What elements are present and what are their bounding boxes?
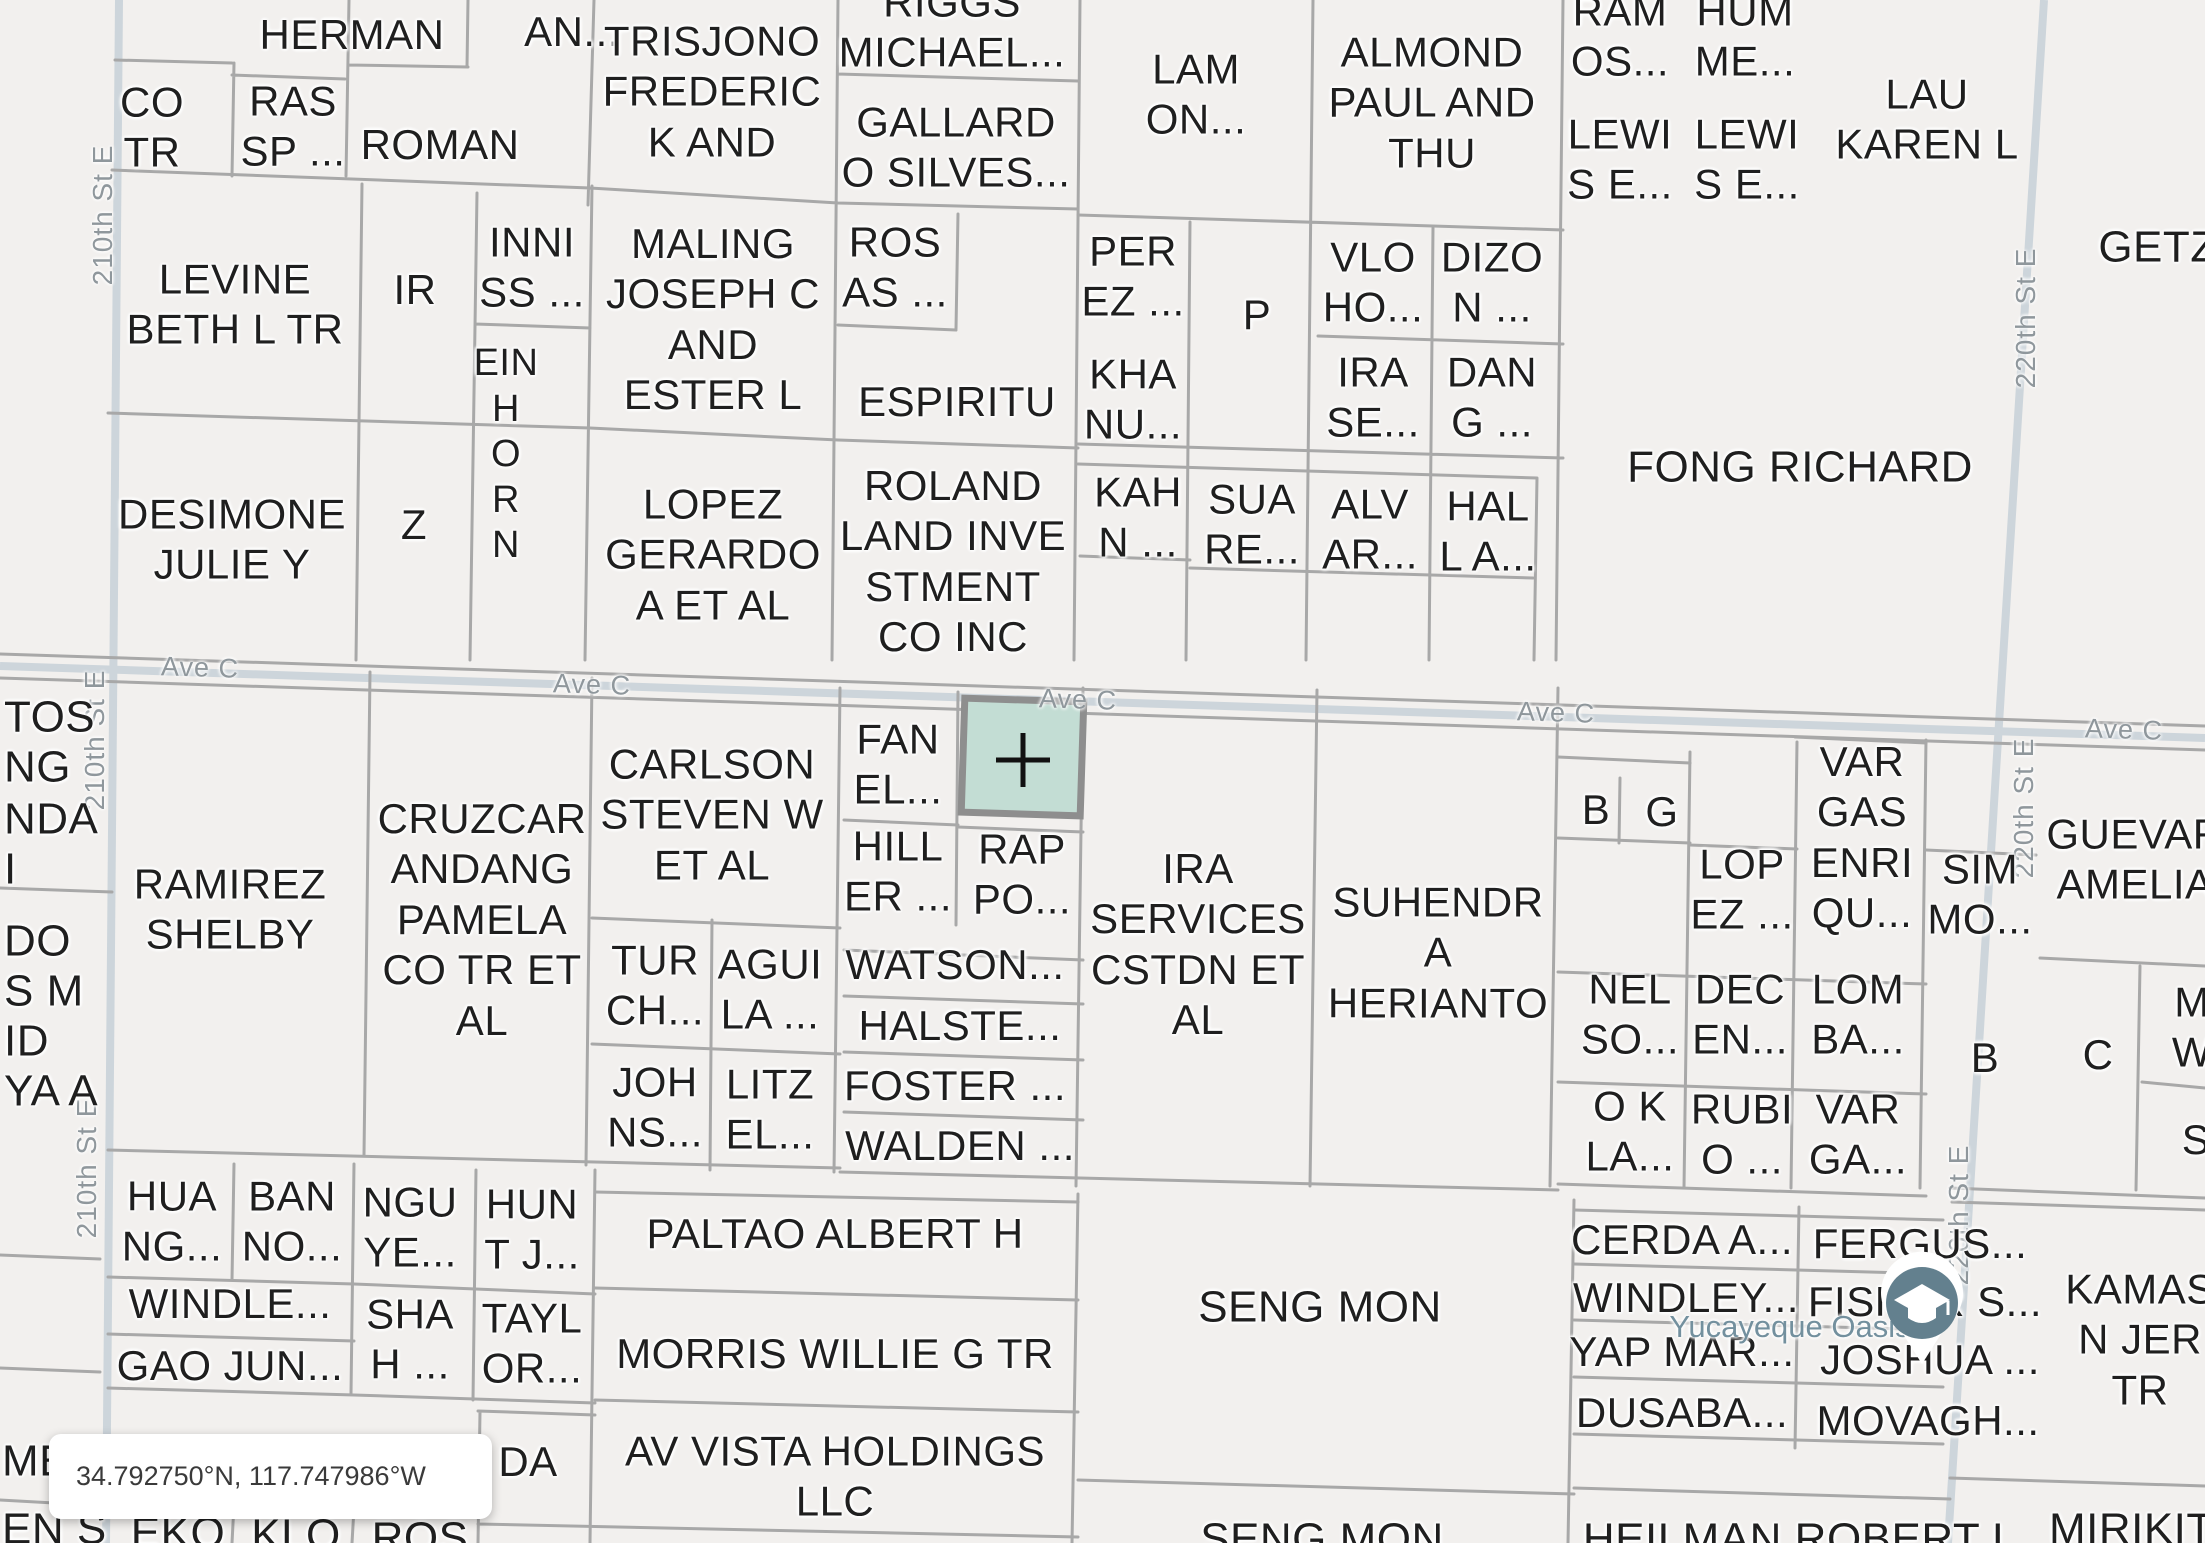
coordinate-readout: 34.792750°N, 117.747986°W <box>49 1434 492 1519</box>
school-place-pin-icon[interactable] <box>1881 1252 1963 1364</box>
coordinate-text: 34.792750°N, 117.747986°W <box>76 1461 426 1492</box>
map-canvas[interactable]: Yucayeque Oasis 34.792750°N, 117.747986°… <box>0 0 2205 1543</box>
